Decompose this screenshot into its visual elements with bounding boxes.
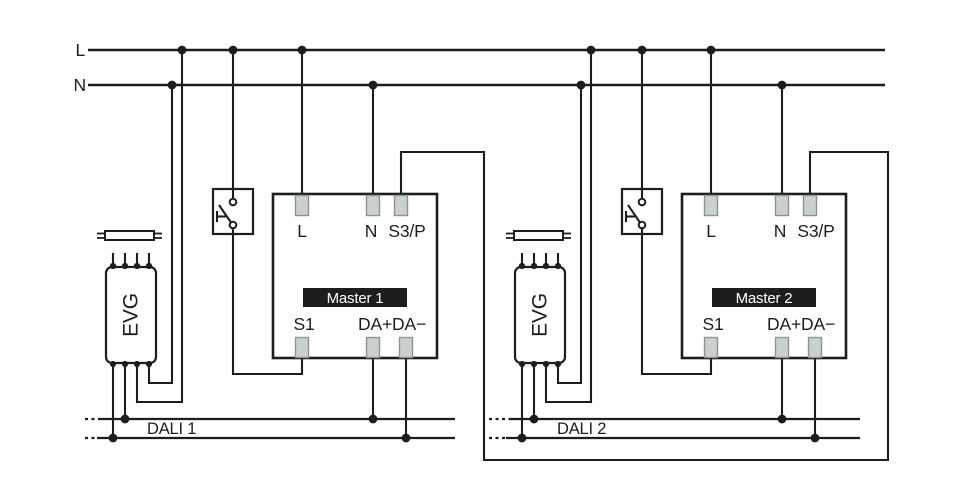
junction-dot xyxy=(178,46,187,55)
master1-terminal-pad-l xyxy=(296,196,309,216)
master2-terminal-pad-l xyxy=(705,196,718,216)
dali2-label: DALI 2 xyxy=(557,420,606,438)
master1-terminal-l-label: L xyxy=(297,221,307,241)
dali-wiring-diagram: LNLNS3/PMaster 1S1DA+DA−EVGDALI 1LNS3/PM… xyxy=(0,0,970,504)
master2-terminal-pad-s1 xyxy=(705,338,718,358)
evg-pin-dot xyxy=(122,361,128,367)
junction-dot xyxy=(168,81,177,90)
evg-pin-dot xyxy=(531,263,537,269)
master1-terminal-s3p-label: S3/P xyxy=(388,221,425,241)
lamp2-tube xyxy=(514,231,563,240)
switch1-contact-top xyxy=(230,199,237,206)
master1-terminal-pad-s1 xyxy=(296,338,309,358)
switch1-contact-bottom xyxy=(230,222,237,229)
lamp1-tube xyxy=(105,231,154,240)
evg2-label: EVG xyxy=(529,293,552,337)
wiring-diagram-page: LNLNS3/PMaster 1S1DA+DA−EVGDALI 1LNS3/PM… xyxy=(0,0,970,504)
master2-terminal-pad-daplus xyxy=(776,338,789,358)
junction-dot xyxy=(530,415,539,424)
junction-dot xyxy=(778,415,787,424)
evg-pin-dot xyxy=(110,361,116,367)
junction-dot xyxy=(369,415,378,424)
evg-pin-dot xyxy=(134,263,140,269)
master2-terminal-s1-label: S1 xyxy=(702,314,723,334)
master2-banner-label: Master 2 xyxy=(736,290,793,307)
master1-banner-label: Master 1 xyxy=(327,290,384,307)
junction-dot xyxy=(121,415,130,424)
evg-pin-dot xyxy=(555,263,561,269)
junction-dot xyxy=(638,46,647,55)
master1-terminal-pad-n xyxy=(367,196,380,216)
junction-dot xyxy=(369,81,378,90)
evg-pin-dot xyxy=(543,263,549,269)
switch2-contact-bottom xyxy=(639,222,646,229)
master1-terminal-daplus-label: DA+ xyxy=(358,314,392,334)
master2-terminal-pad-daminus xyxy=(809,338,822,358)
junction-dot xyxy=(778,81,787,90)
evg1-label: EVG xyxy=(120,293,143,337)
master1-terminal-pad-daminus xyxy=(400,338,413,358)
master2-terminal-l-label: L xyxy=(706,221,716,241)
evg-pin-dot xyxy=(543,361,549,367)
junction-dot xyxy=(402,434,411,443)
switch2-contact-top xyxy=(639,199,646,206)
junction-dot xyxy=(707,46,716,55)
evg-pin-dot xyxy=(531,361,537,367)
dali1-label: DALI 1 xyxy=(147,420,196,438)
junction-dot xyxy=(109,434,118,443)
master1-terminal-pad-daplus xyxy=(367,338,380,358)
master1-terminal-s1-label: S1 xyxy=(293,314,314,334)
junction-dot xyxy=(229,46,238,55)
bus-l-label: L xyxy=(75,40,85,60)
evg-pin-dot xyxy=(555,361,561,367)
master1-terminal-n-label: N xyxy=(365,221,377,241)
junction-dot xyxy=(518,434,527,443)
master2-terminal-daminus-label: DA− xyxy=(801,314,835,334)
master2-terminal-pad-s3p xyxy=(804,196,817,216)
master1-terminal-pad-s3p xyxy=(395,196,408,216)
junction-dot xyxy=(577,81,586,90)
master2-terminal-s3p-label: S3/P xyxy=(797,221,834,241)
evg-pin-dot xyxy=(146,361,152,367)
junction-dot xyxy=(298,46,307,55)
evg-pin-dot xyxy=(110,263,116,269)
junction-dot xyxy=(587,46,596,55)
bus-n-label: N xyxy=(74,75,86,95)
junction-dot xyxy=(811,434,820,443)
master2-terminal-pad-n xyxy=(776,196,789,216)
master2-terminal-n-label: N xyxy=(774,221,786,241)
master2-terminal-daplus-label: DA+ xyxy=(767,314,801,334)
evg-pin-dot xyxy=(146,263,152,269)
evg-pin-dot xyxy=(134,361,140,367)
master1-terminal-daminus-label: DA− xyxy=(392,314,426,334)
evg-pin-dot xyxy=(122,263,128,269)
evg-pin-dot xyxy=(519,263,525,269)
evg-pin-dot xyxy=(519,361,525,367)
